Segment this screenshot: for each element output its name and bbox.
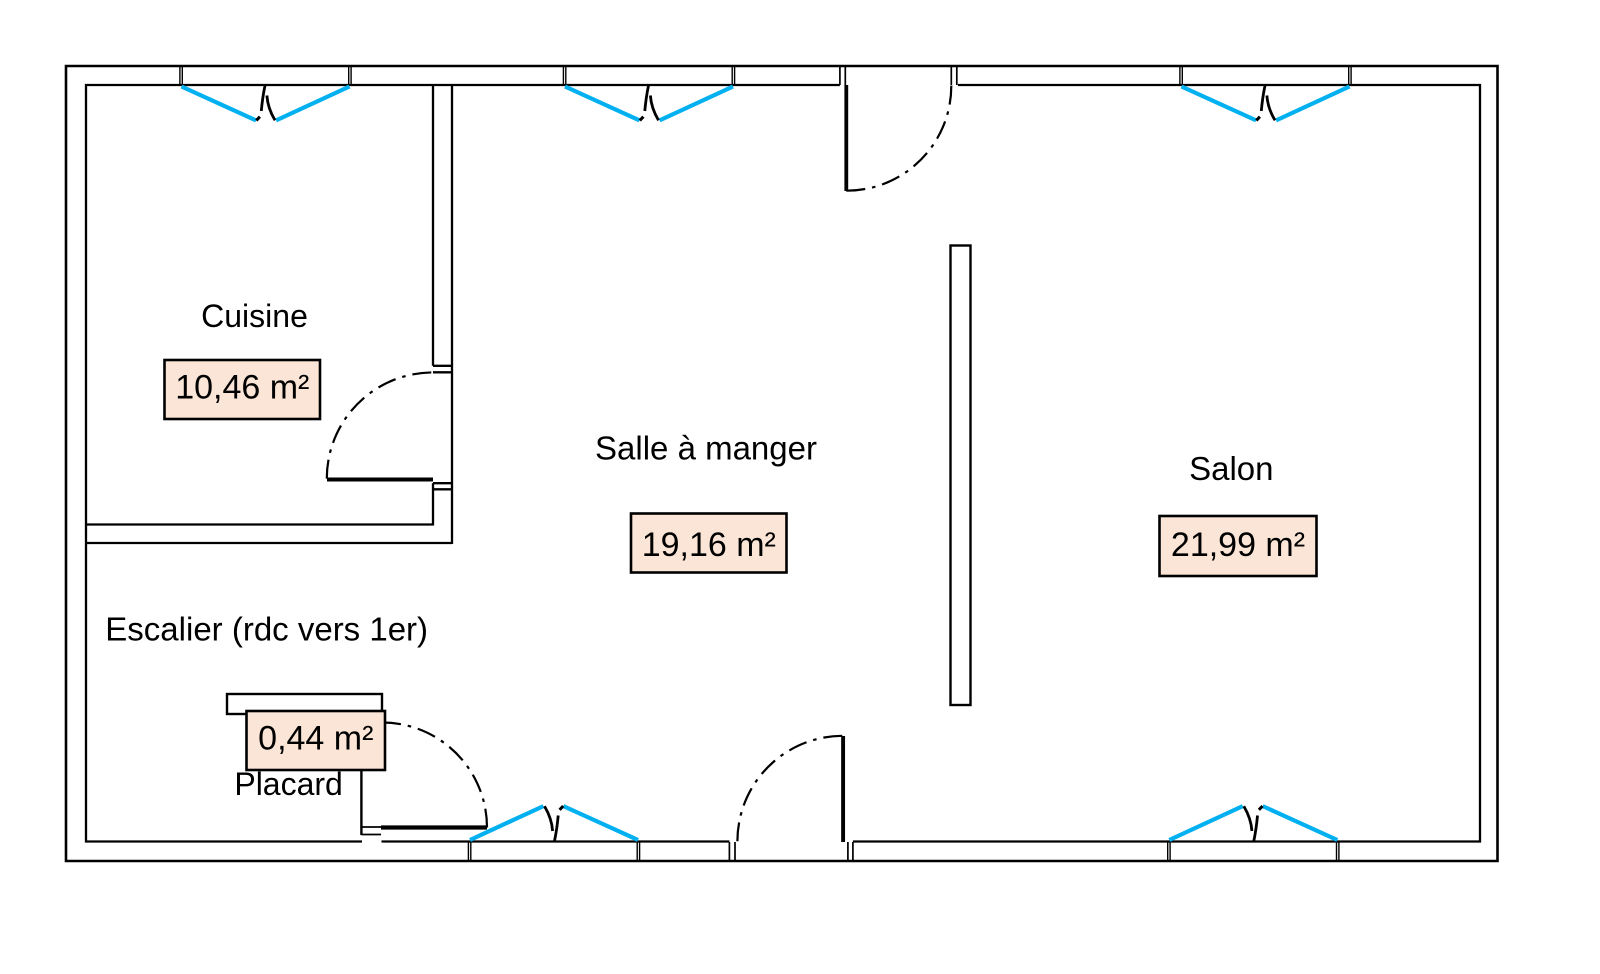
svg-text:0,44 m²: 0,44 m² [258, 720, 373, 758]
svg-text:Salle à manger: Salle à manger [595, 430, 817, 467]
svg-text:19,16 m²: 19,16 m² [642, 526, 776, 564]
svg-text:10,46 m²: 10,46 m² [175, 369, 309, 407]
svg-text:Salon: Salon [1189, 450, 1273, 487]
svg-text:Placard: Placard [234, 766, 343, 802]
svg-text:Escalier (rdc vers 1er): Escalier (rdc vers 1er) [105, 611, 428, 648]
svg-text:21,99 m²: 21,99 m² [1171, 526, 1305, 564]
svg-text:Cuisine: Cuisine [201, 298, 308, 334]
